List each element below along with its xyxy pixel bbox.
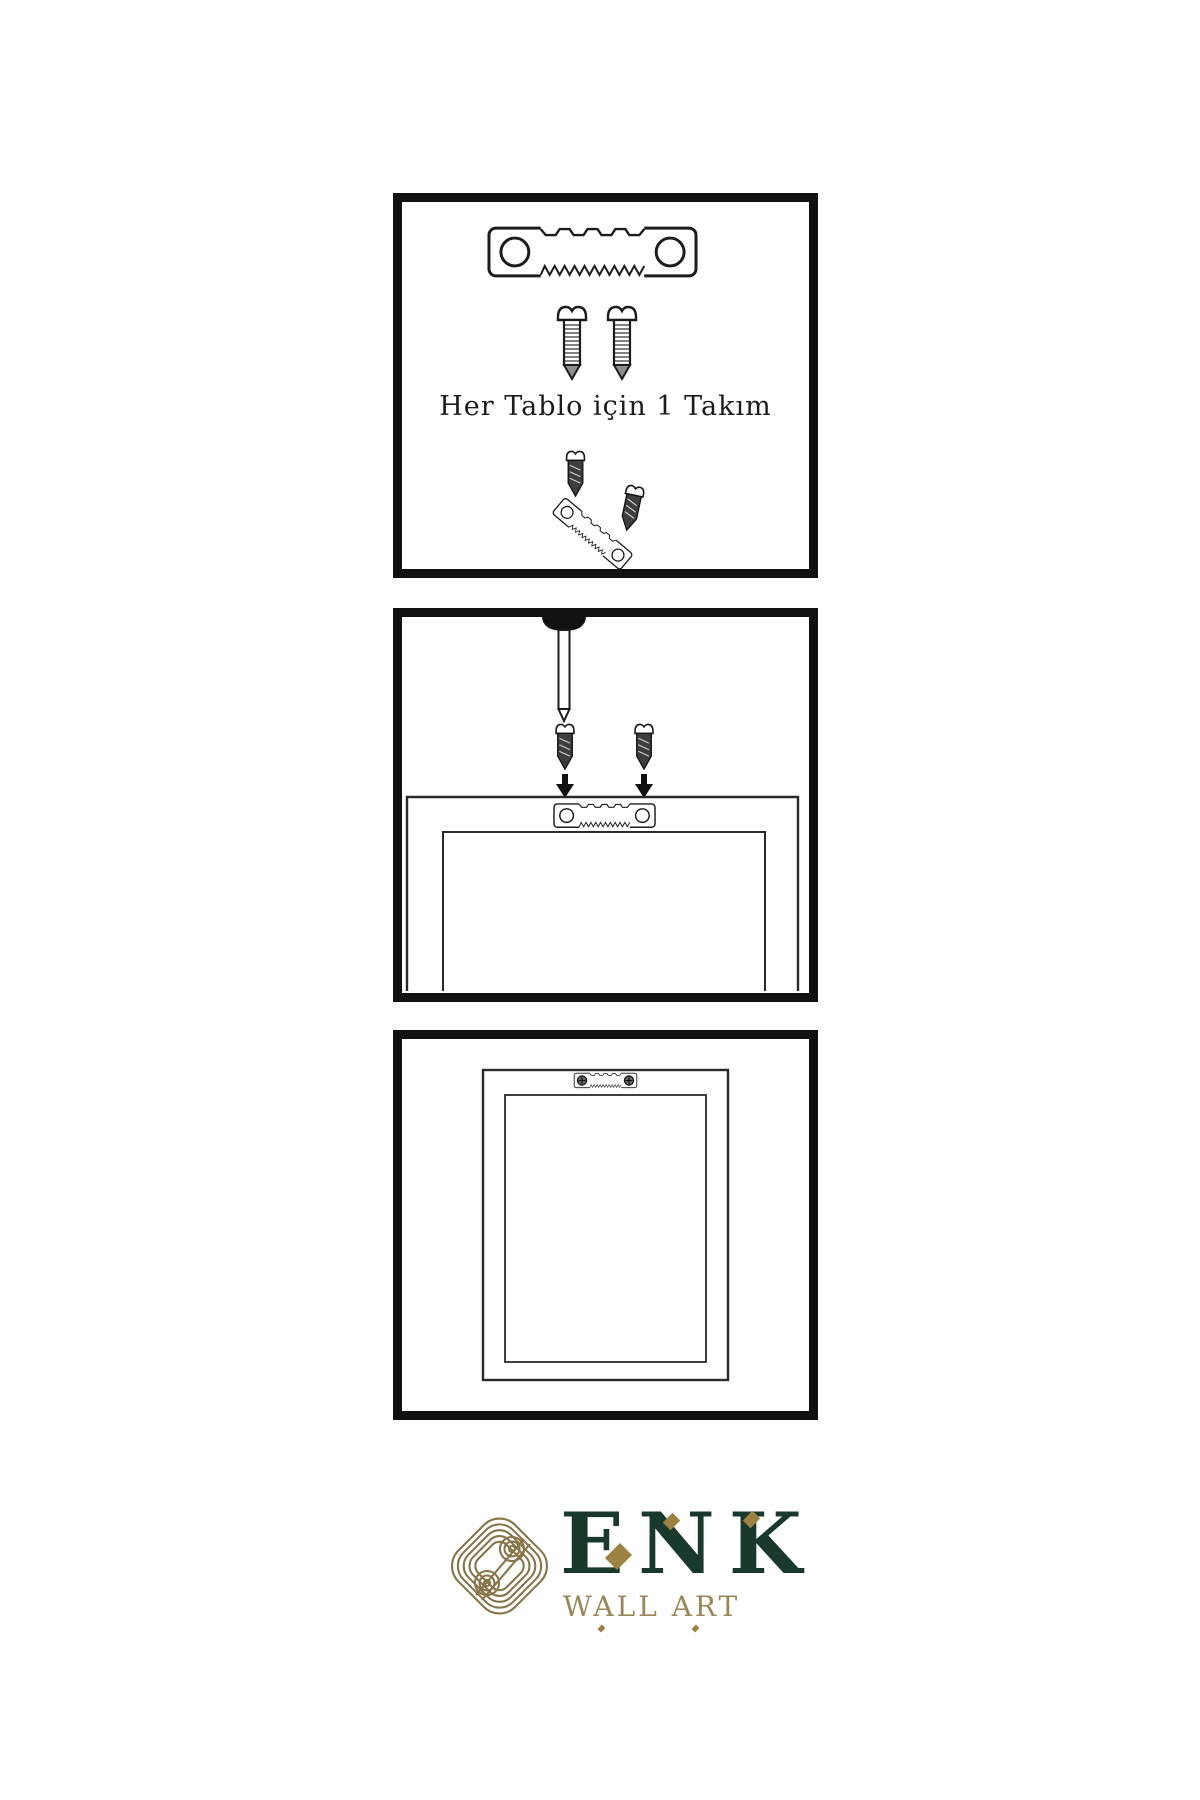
gold-diamond-dot — [692, 1625, 700, 1633]
instruction-sheet: Her Tablo için 1 Takım — [0, 0, 1200, 1800]
knot-logo-icon — [442, 1505, 557, 1627]
sawtooth-hanger-icon — [489, 224, 696, 280]
hung-frame-illustration — [393, 1030, 818, 1420]
installed-screw-head-icon — [624, 1076, 633, 1085]
kit-caption: Her Tablo için 1 Takım — [393, 391, 818, 422]
hardware-kit-illustration — [393, 193, 818, 578]
installed-screw-head-icon — [577, 1076, 586, 1085]
gold-diamond-dot — [598, 1625, 606, 1633]
panel-hardware-kit: Her Tablo için 1 Takım — [393, 193, 818, 578]
frame-inner-outline — [505, 1095, 706, 1362]
brand-subtitle: WALL ART — [563, 1592, 803, 1622]
brand-name: ENK — [560, 1498, 820, 1590]
panel-hung-frame — [393, 1030, 818, 1420]
panel-mounting-step — [393, 608, 818, 1002]
mounting-step-illustration — [393, 608, 818, 1002]
sawtooth-hanger-icon — [554, 802, 655, 829]
